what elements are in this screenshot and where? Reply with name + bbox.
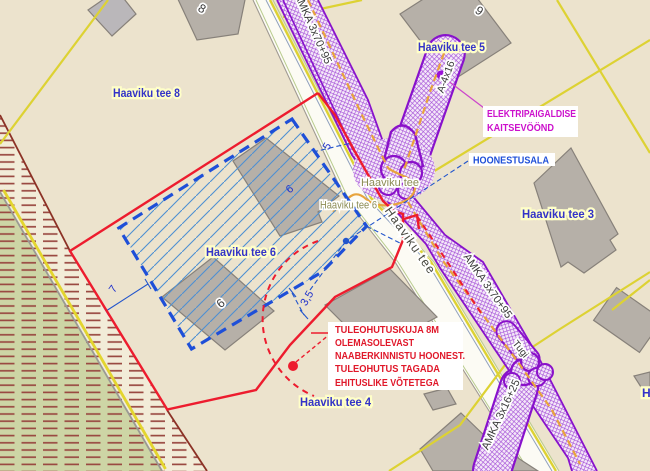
svg-text:Haaviku tee 6: Haaviku tee 6 <box>206 245 276 259</box>
svg-text:OLEMASOLEVAST: OLEMASOLEVAST <box>335 337 414 349</box>
svg-text:Haaviku tee: Haaviku tee <box>361 177 419 189</box>
svg-text:Haaviku tee 3: Haaviku tee 3 <box>522 207 594 221</box>
svg-text:Haaviku: Haaviku <box>642 386 650 400</box>
svg-text:Haaviku tee 5: Haaviku tee 5 <box>418 40 485 54</box>
svg-text:TULEOHUTUS TAGADA: TULEOHUTUS TAGADA <box>335 363 440 375</box>
svg-text:Haaviku tee 4: Haaviku tee 4 <box>300 395 371 409</box>
svg-text:TULEOHUTUSKUJA 8M: TULEOHUTUSKUJA 8M <box>335 324 439 336</box>
svg-text:ELEKTRIPAIGALDISE: ELEKTRIPAIGALDISE <box>487 109 576 120</box>
svg-text:Haaviku tee 6: Haaviku tee 6 <box>320 200 377 212</box>
svg-text:HOONESTUSALA: HOONESTUSALA <box>473 155 549 167</box>
svg-text:Haaviku tee 8: Haaviku tee 8 <box>113 86 180 100</box>
svg-text:KAITSEVÖÖND: KAITSEVÖÖND <box>487 121 554 134</box>
svg-text:EHITUSLIKE VÕTETEGA: EHITUSLIKE VÕTETEGA <box>335 376 439 389</box>
svg-text:NAABERKINNISTU HOONEST.: NAABERKINNISTU HOONEST. <box>335 350 465 362</box>
